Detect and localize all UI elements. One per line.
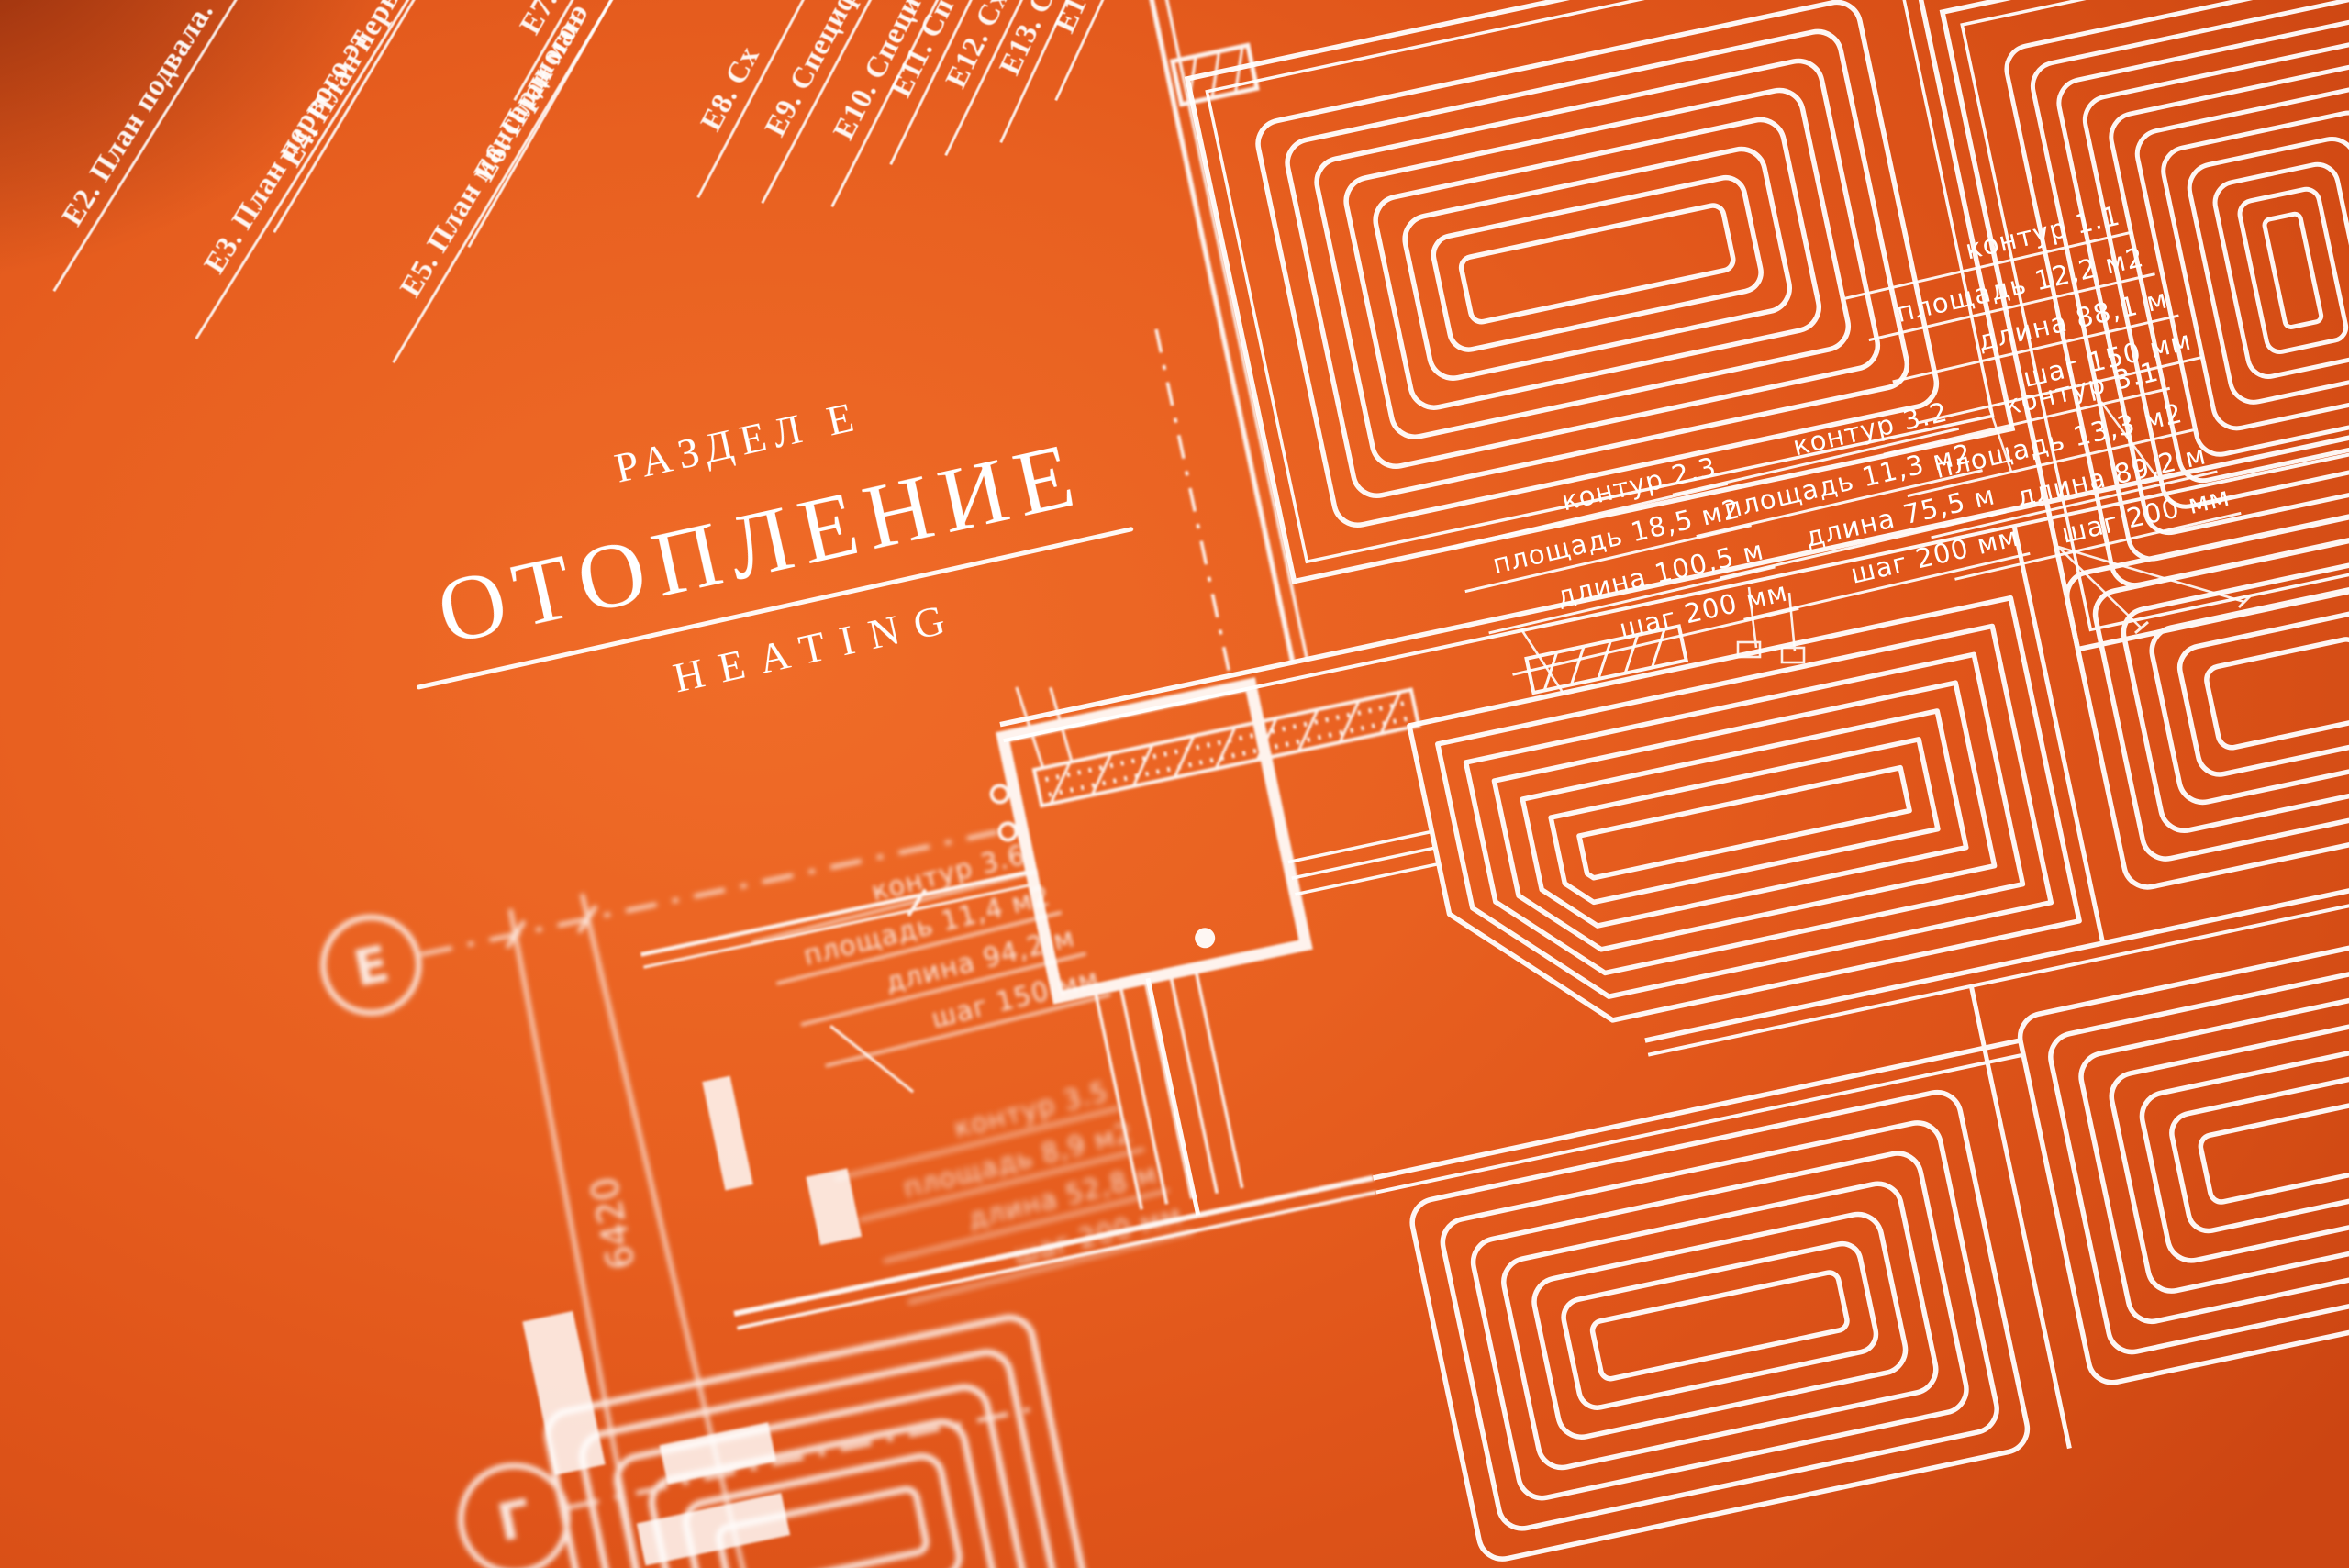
dashed-axis-line (1156, 329, 1229, 671)
pipe-line (1170, 973, 1217, 1194)
heating-coil-loop (1494, 683, 1994, 963)
wall-line (1151, 0, 1293, 662)
heating-coil-loop (2199, 1095, 2349, 1204)
blueprint-photo: Е Г 6420 Е2. План подвала. С Е3. План пе… (0, 0, 2349, 1568)
pipe-line (1196, 968, 1242, 1188)
heating-coil-loop (2168, 1064, 2349, 1234)
wall-line (1164, 0, 1307, 660)
axis-marker-label: Е (349, 935, 394, 998)
pier-block (703, 1076, 752, 1190)
heating-coil-loop (1408, 1088, 2032, 1563)
pipe-line (1295, 864, 1439, 895)
heating-coil-loop (2204, 637, 2349, 750)
axis-marker-label: Г (493, 1489, 537, 1554)
valve-icon (990, 784, 1009, 804)
pipe-stub (1782, 648, 1804, 662)
wall-line (1374, 1040, 2021, 1178)
heating-coil-loop (2264, 213, 2322, 328)
valve-dot (1193, 926, 1217, 950)
heating-coil-loop (1551, 740, 1938, 907)
dimension-label: 6420 (584, 1173, 644, 1273)
heating-coil-loop (1430, 174, 1765, 353)
heating-coil-loop (1466, 654, 2023, 992)
heating-coil-loop (1459, 204, 1735, 324)
heating-coil-loop (2120, 552, 2349, 835)
pipe-line (1292, 848, 1436, 878)
wall-line (2014, 526, 2103, 943)
heating-coil-loop (2176, 608, 2349, 778)
pipe-line (1288, 831, 1432, 862)
heating-coil-loop (2237, 187, 2348, 355)
pier-block (637, 1494, 789, 1565)
heating-coil-loop (2138, 1034, 2349, 1265)
heating-coil-loop (1579, 768, 1909, 879)
